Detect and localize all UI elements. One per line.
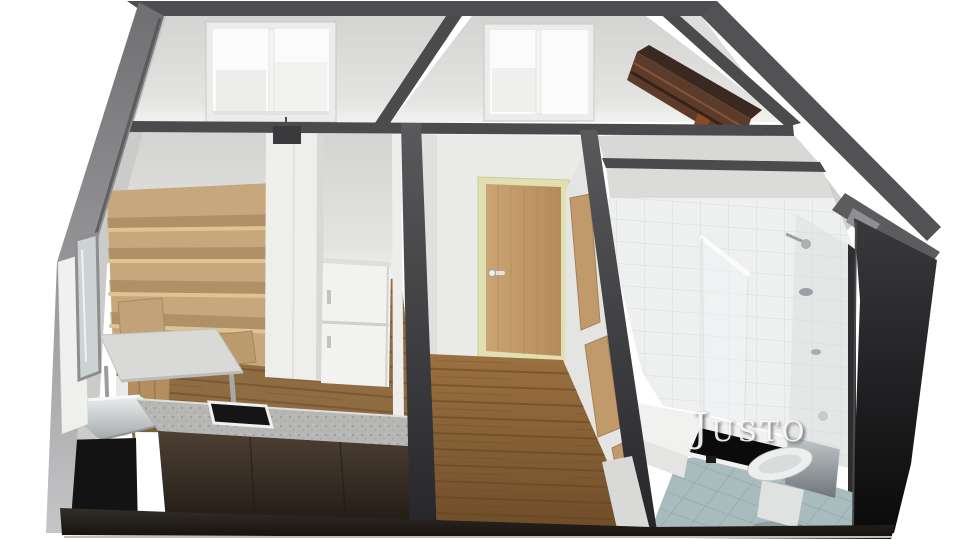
justo-watermark: Justo xyxy=(688,405,807,451)
shower-control-icon xyxy=(799,288,813,296)
hand-shower-icon xyxy=(818,411,828,421)
wall-mirror xyxy=(76,234,100,380)
refrigerator xyxy=(321,258,391,387)
floorplan-svg: Justo xyxy=(0,0,960,540)
window-bedroom2 xyxy=(484,24,594,121)
fridge-handle xyxy=(327,336,331,348)
bathtub-drain xyxy=(706,456,716,463)
shower-control-icon xyxy=(811,349,821,355)
floorplan-render: Justo xyxy=(0,0,960,540)
entry-door xyxy=(478,177,569,362)
fridge-handle xyxy=(327,290,331,304)
cooktop xyxy=(209,402,272,427)
kitchen-cabinets xyxy=(158,431,432,525)
shower-head-icon xyxy=(801,239,811,249)
door-handle xyxy=(489,270,496,277)
wall-back-top xyxy=(127,1,717,16)
white-wardrobe xyxy=(265,129,324,381)
window-bedroom1 xyxy=(206,22,336,122)
